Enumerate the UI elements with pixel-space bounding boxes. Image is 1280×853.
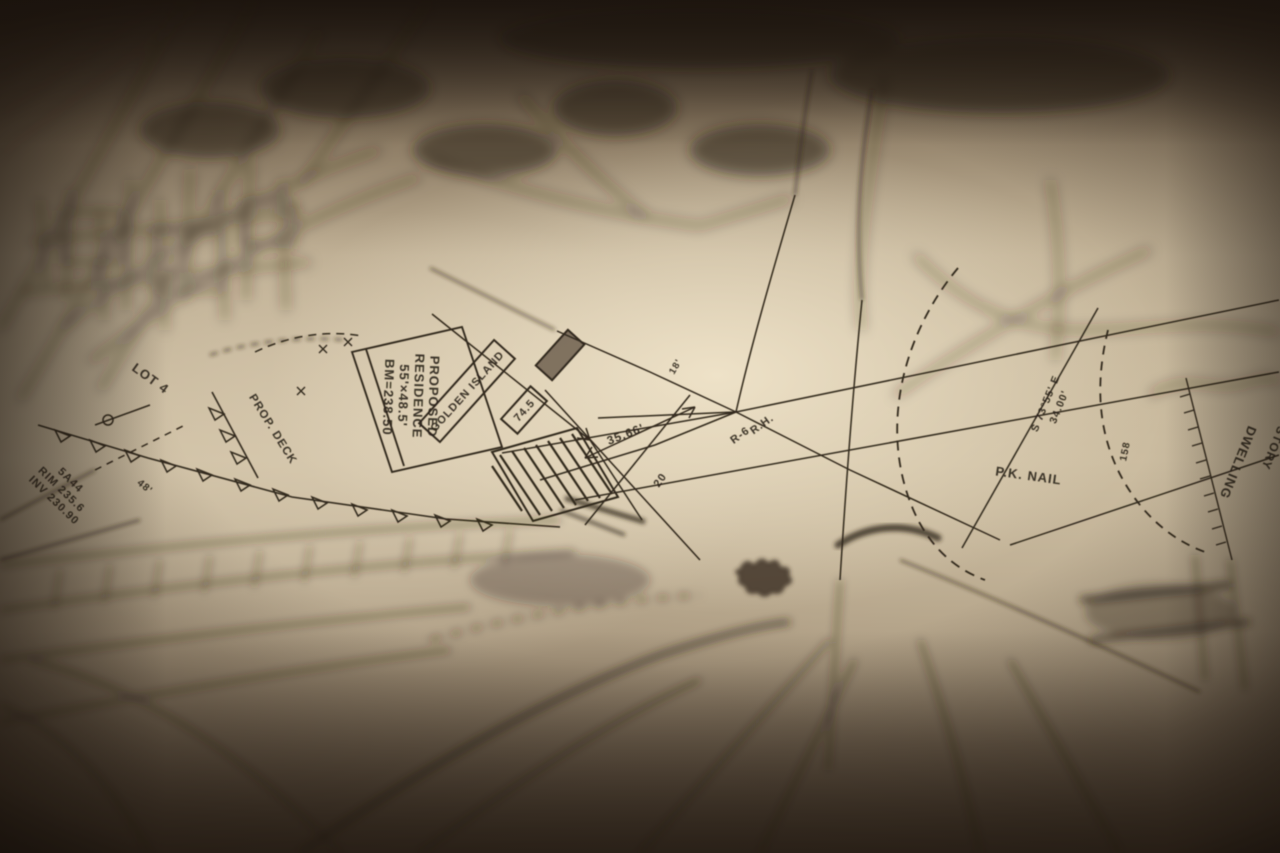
svg-text:PROPOSED RESIDENCE: PROPOSED RESIDENCE 55'×48.5' BM=238.50 <box>379 352 442 444</box>
label-dwelling: DWELLING <box>1217 424 1260 501</box>
station-ticks <box>1180 378 1232 560</box>
blurred-lower-drawing <box>0 520 1250 853</box>
survey-map-photograph: GOLDEN ISLAND 74.5 PROPOSED RESIDENCE 55… <box>0 0 1280 853</box>
proposed-residence-text: PROPOSED RESIDENCE 55'×48.5' BM=238.50 <box>379 352 442 444</box>
label-prop-deck: PROP. DECK <box>246 392 299 466</box>
bearing-text: S 73°55' E 34.00' <box>1029 370 1077 439</box>
label-lot: LOT 4 <box>129 360 172 397</box>
label-20: 20 <box>652 471 670 490</box>
blurred-text-smudge <box>1085 584 1235 640</box>
label-35-66ft: 35.66' <box>605 421 646 448</box>
survey-lines <box>95 195 1279 580</box>
fence-line <box>38 392 560 531</box>
label-pk-nail: P.K. NAIL <box>995 463 1063 487</box>
blurred-smudges <box>140 8 1170 176</box>
manhole-text: 5A44 RIM 235.6 INV 230.90 <box>26 455 99 528</box>
sharp-survey-drawing: GOLDEN ISLAND 74.5 PROPOSED RESIDENCE 55… <box>26 195 1280 596</box>
svg-text:S 73°55' E 34.00': S 73°55' E 34.00' <box>1029 370 1077 439</box>
manhole-symbol <box>95 405 150 425</box>
x-marks <box>297 338 352 395</box>
tree-scribble <box>736 559 791 596</box>
blurred-label-smudge <box>470 554 650 606</box>
dashed-arcs <box>897 268 1205 580</box>
label-contour-158: 158 <box>1118 441 1133 463</box>
label-benchmark: BM=238.50 <box>380 359 398 436</box>
svg-text:5A44 RIM 235.6: 5A44 RIM 235.6 INV 230.90 <box>26 455 99 528</box>
drafting-linework: GOLDEN ISLAND 74.5 PROPOSED RESIDENCE 55… <box>0 0 1280 853</box>
label-rh: R.H. <box>748 412 776 437</box>
small-label-box: 74.5 <box>501 386 547 433</box>
small-box-label: 74.5 <box>512 397 538 424</box>
label-48ft: 48' <box>135 478 155 497</box>
label-18ft: 18' <box>667 357 684 376</box>
heavy-pencil-arc <box>838 528 938 545</box>
dark-label-box <box>536 330 584 380</box>
label-2-story: 2 STORY <box>1258 413 1280 472</box>
